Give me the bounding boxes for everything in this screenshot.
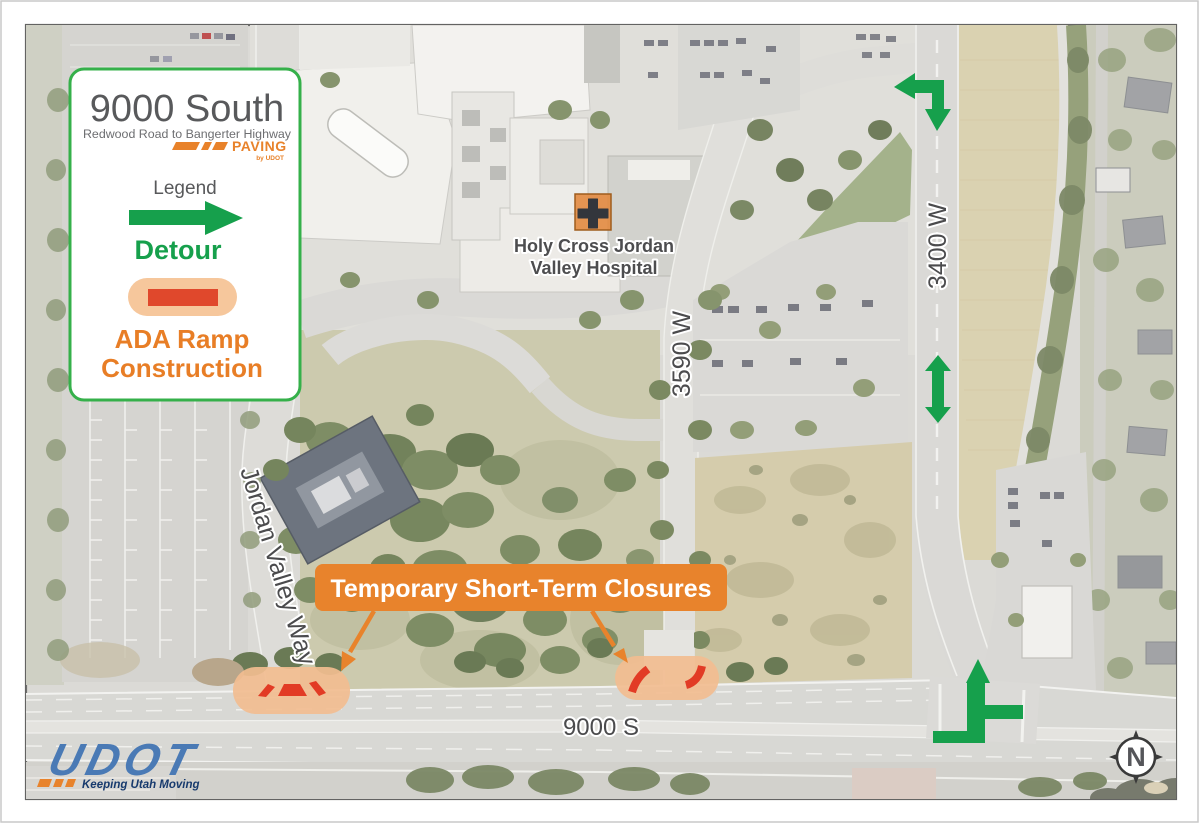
svg-text:N: N — [1126, 742, 1146, 772]
svg-text:UDOT: UDOT — [44, 735, 204, 785]
svg-text:ADA Ramp: ADA Ramp — [115, 324, 250, 354]
svg-text:9000 South: 9000 South — [90, 88, 284, 130]
svg-text:Detour: Detour — [135, 235, 222, 265]
svg-text:Valley Hospital: Valley Hospital — [530, 258, 657, 278]
svg-text:Legend: Legend — [153, 178, 216, 199]
svg-text:Construction: Construction — [101, 353, 263, 383]
svg-text:Temporary Short-Term Closures: Temporary Short-Term Closures — [330, 575, 711, 603]
svg-text:Keeping Utah Moving: Keeping Utah Moving — [82, 779, 200, 791]
svg-text:3400 W: 3400 W — [924, 203, 952, 290]
svg-text:Holy Cross Jordan: Holy Cross Jordan — [514, 236, 674, 256]
svg-text:PAVING: PAVING — [232, 138, 287, 154]
svg-text:9000 S: 9000 S — [563, 714, 639, 741]
svg-text:by UDOT: by UDOT — [256, 155, 284, 162]
svg-text:3590 W: 3590 W — [668, 311, 696, 398]
